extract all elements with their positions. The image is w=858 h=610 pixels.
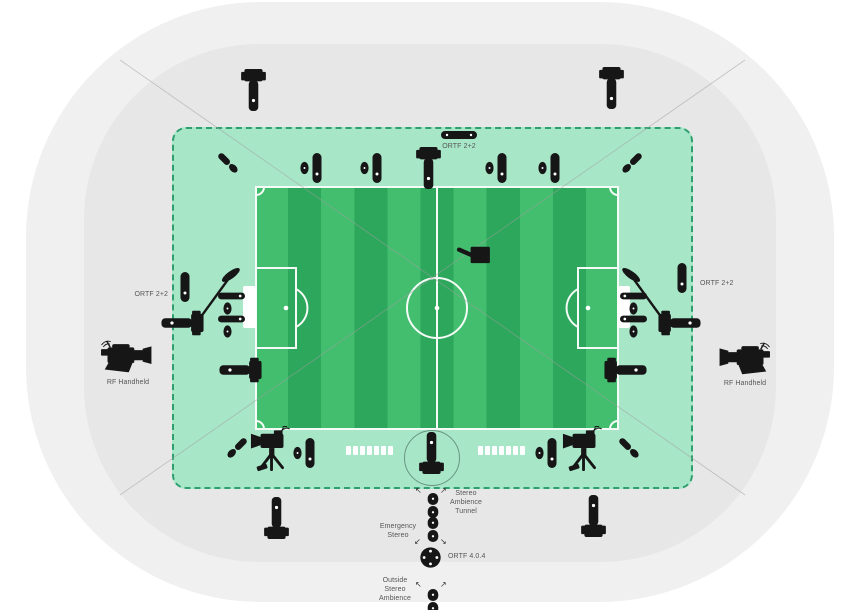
capsule-mic-icon xyxy=(305,438,315,468)
bench-icon xyxy=(346,446,393,455)
stereo-ambience-tunnel-label: Stereo Ambience Tunnel xyxy=(448,490,484,516)
rf-handheld-right-label: RF Handheld xyxy=(717,380,773,389)
arrow-down-right-icon: ↘ xyxy=(440,538,447,546)
mic-group xyxy=(293,438,315,468)
stadium-audio-diagram: ↖ ↗ ↙ ↘ ↖ ↗ ORTF 2+2 ORTF 2+2 ORTF 2+2 R… xyxy=(0,0,858,610)
stereo-mic-icon xyxy=(426,589,440,610)
oval-mic-icon xyxy=(293,446,302,460)
pedestal-camera-icon xyxy=(581,494,606,538)
shoulder-rf-camera-icon xyxy=(719,341,771,378)
arrow-up-left-icon: ↖ xyxy=(415,487,422,495)
shotgun-mic-icon xyxy=(218,292,245,300)
mic-group xyxy=(485,153,507,183)
ortf-2-2-top-label: ORTF 2+2 xyxy=(436,143,482,152)
pedestal-camera-icon xyxy=(416,146,441,190)
ortf-4-0-4-label: ORTF 4.0.4 xyxy=(448,553,498,562)
bench-icon xyxy=(478,446,525,455)
mic-group xyxy=(535,438,557,468)
arrow-up-left-icon: ↖ xyxy=(415,581,422,589)
shotgun-mic-icon xyxy=(620,292,647,300)
pedestal-camera-icon xyxy=(419,431,444,475)
ortf-2-2-left-label: ORTF 2+2 xyxy=(120,291,168,300)
mic-group xyxy=(360,153,382,183)
mic-group xyxy=(538,153,560,183)
oval-mic-icon xyxy=(629,325,638,338)
oval-mic-icon xyxy=(223,325,232,338)
angled-mic-pair-icon xyxy=(224,435,250,461)
rf-handheld-left-label: RF Handheld xyxy=(100,379,156,388)
capsule-mic-icon xyxy=(372,153,382,183)
ortf-bar-icon xyxy=(441,130,477,140)
mic-group xyxy=(300,153,322,183)
stereo-mic-icon xyxy=(426,493,440,518)
pedestal-camera-icon xyxy=(264,496,289,540)
emergency-stereo-label: Emergency Stereo xyxy=(376,523,420,541)
angled-mic-pair-icon xyxy=(619,150,645,176)
oval-mic-icon xyxy=(360,161,369,175)
pitch xyxy=(255,186,619,430)
shotgun-mic-icon xyxy=(218,315,245,323)
capsule-mic-icon xyxy=(497,153,507,183)
pedestal-camera-icon xyxy=(241,68,266,112)
pitch-markings xyxy=(255,186,619,430)
pedestal-camera-icon xyxy=(599,66,624,110)
tripod-rf-camera-icon xyxy=(250,426,294,472)
ortf-2-2-right-label: ORTF 2+2 xyxy=(700,280,750,289)
oval-mic-icon xyxy=(223,302,232,315)
oval-mic-icon xyxy=(538,161,547,175)
angled-mic-pair-icon xyxy=(616,435,642,461)
arrow-up-right-icon: ↗ xyxy=(440,487,447,495)
spidercam-icon xyxy=(455,241,492,268)
capsule-mic-icon xyxy=(312,153,322,183)
arrow-up-right-icon: ↗ xyxy=(440,581,447,589)
capsule-mic-icon xyxy=(547,438,557,468)
angled-mic-pair-icon xyxy=(215,150,241,176)
oval-mic-icon xyxy=(300,161,309,175)
ortf-404-array-icon xyxy=(419,546,442,569)
oval-mic-icon xyxy=(485,161,494,175)
capsule-mic-icon xyxy=(550,153,560,183)
oval-mic-icon xyxy=(629,302,638,315)
pedestal-camera-icon xyxy=(219,358,263,383)
oval-mic-icon xyxy=(535,446,544,460)
shotgun-mic-icon xyxy=(620,315,647,323)
capsule-mic-icon xyxy=(677,263,687,293)
outside-stereo-ambience-label: Outside Stereo Ambience xyxy=(374,577,416,603)
shoulder-rf-camera-icon xyxy=(100,339,152,376)
tripod-rf-camera-icon xyxy=(562,426,606,472)
pedestal-camera-icon xyxy=(604,358,648,383)
stereo-mic-icon xyxy=(426,517,440,542)
capsule-mic-icon xyxy=(180,272,190,302)
